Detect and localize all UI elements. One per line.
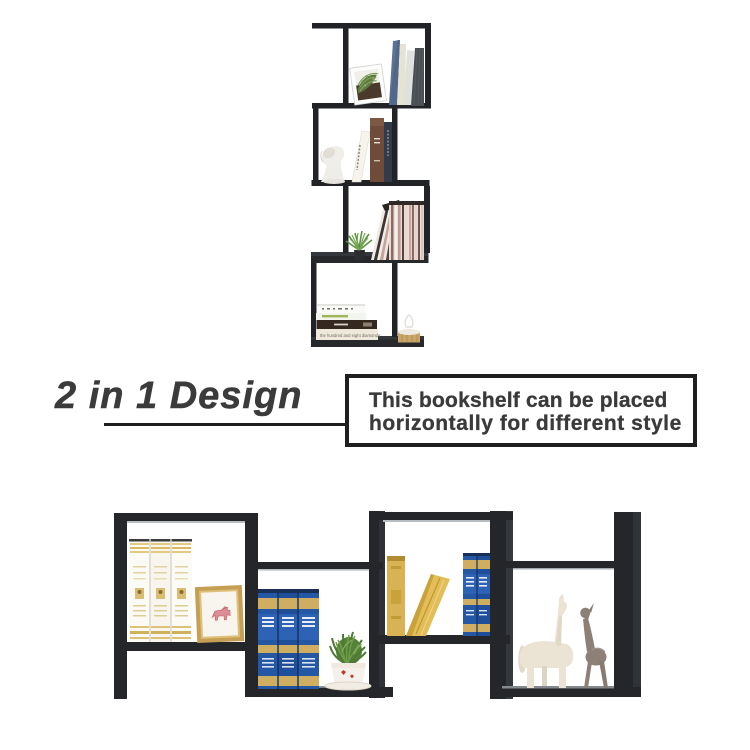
svg-text:the hundred and eight diamonds: the hundred and eight diamonds bbox=[320, 333, 380, 338]
